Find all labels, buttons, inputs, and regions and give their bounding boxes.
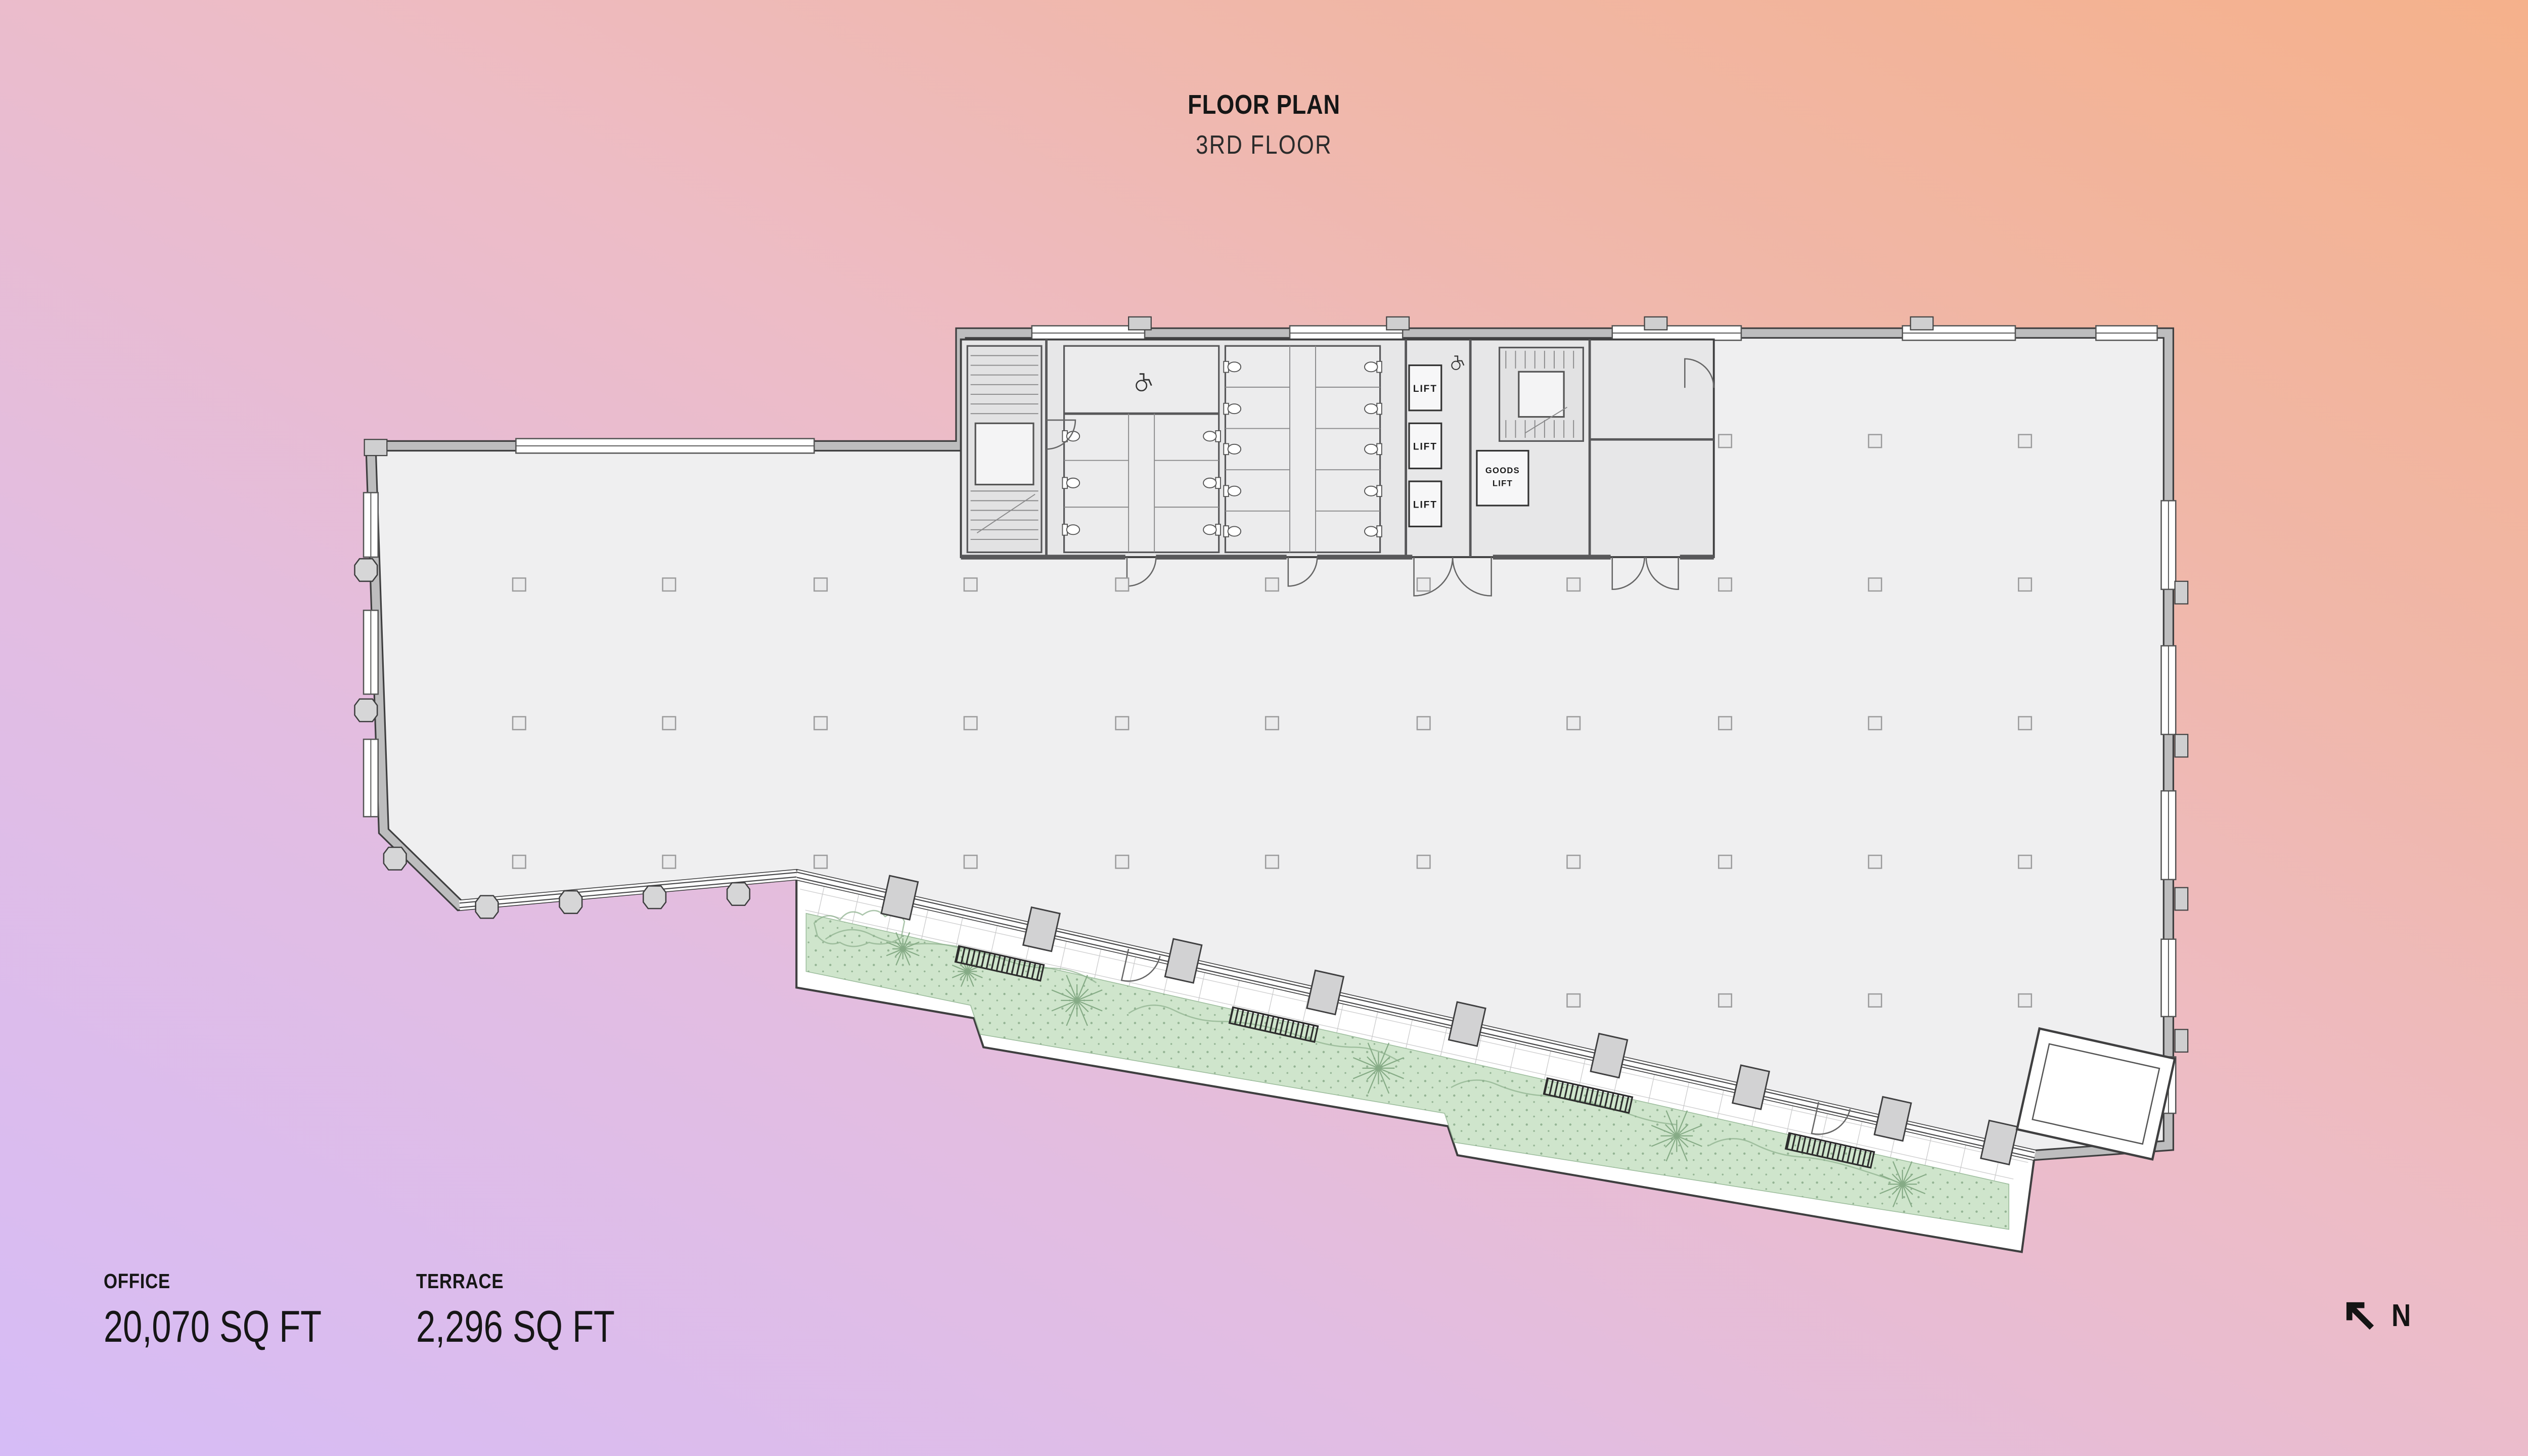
stat-office-value: 20,070 SQ FT bbox=[104, 1301, 322, 1352]
title-block: FLOOR PLAN 3RD FLOOR bbox=[0, 89, 2528, 160]
north-arrow-icon bbox=[2340, 1296, 2379, 1335]
stat-terrace-value: 2,296 SQ FT bbox=[416, 1301, 615, 1352]
column-marker bbox=[1719, 994, 1732, 1007]
wall-pier bbox=[1911, 317, 1933, 330]
toilet-icon bbox=[1365, 485, 1382, 496]
toilet-icon bbox=[1224, 403, 1241, 415]
wall-pier bbox=[1645, 317, 1667, 330]
column-marker bbox=[663, 717, 676, 730]
lift-label: LIFT bbox=[1413, 442, 1437, 452]
goods-lift-label-2: LIFT bbox=[1493, 479, 1513, 488]
toilet-icon bbox=[1224, 485, 1241, 496]
pilaster bbox=[476, 896, 499, 919]
toilet-icon bbox=[1365, 526, 1382, 537]
column-marker bbox=[964, 578, 977, 591]
column-marker bbox=[1266, 717, 1279, 730]
service-core: LIFT LIFT LIFT GOODS LIFT bbox=[961, 340, 1714, 596]
column-marker bbox=[663, 578, 676, 591]
column-marker bbox=[1719, 435, 1732, 448]
stairwell-east bbox=[1500, 347, 1584, 441]
page-subtitle: 3RD FLOOR bbox=[202, 130, 2326, 160]
stat-terrace-label: TERRACE bbox=[416, 1269, 633, 1293]
column-marker bbox=[964, 717, 977, 730]
column-marker bbox=[1719, 855, 1732, 869]
goods-lift-label-1: GOODS bbox=[1485, 466, 1520, 475]
north-label: N bbox=[2391, 1297, 2411, 1334]
toilet-icon bbox=[1203, 524, 1221, 535]
pilaster bbox=[643, 886, 666, 909]
toilet-icon bbox=[1224, 526, 1241, 537]
wall-pier bbox=[2175, 581, 2188, 604]
wall-pier bbox=[2175, 888, 2188, 911]
pilaster bbox=[355, 699, 378, 722]
stat-office-label: OFFICE bbox=[104, 1269, 341, 1293]
column-marker bbox=[1417, 717, 1430, 730]
wall-pier bbox=[365, 439, 387, 456]
column-marker bbox=[1116, 855, 1129, 869]
column-marker bbox=[2018, 435, 2032, 448]
column-marker bbox=[814, 717, 827, 730]
goods-lift: GOODS LIFT bbox=[1477, 451, 1528, 506]
toilet-icon bbox=[1224, 444, 1241, 455]
column-marker bbox=[1567, 578, 1580, 591]
column-marker bbox=[1719, 578, 1732, 591]
lift-label: LIFT bbox=[1413, 499, 1437, 510]
column-marker bbox=[1869, 855, 1882, 869]
column-marker bbox=[814, 855, 827, 869]
pilaster bbox=[384, 847, 407, 870]
toilet-icon bbox=[1203, 477, 1221, 488]
column-marker bbox=[1567, 717, 1580, 730]
column-marker bbox=[964, 855, 977, 869]
pilaster bbox=[560, 891, 582, 914]
column-marker bbox=[513, 578, 526, 591]
column-marker bbox=[513, 717, 526, 730]
column-marker bbox=[1869, 717, 1882, 730]
wc-block-east bbox=[1225, 346, 1380, 552]
wall-pier bbox=[2175, 1029, 2188, 1052]
wall-pier bbox=[2175, 735, 2188, 757]
toilet-icon bbox=[1365, 403, 1382, 415]
column-marker bbox=[1417, 578, 1430, 591]
wc-block-west bbox=[1064, 346, 1219, 552]
column-marker bbox=[1116, 717, 1129, 730]
toilet-icon bbox=[1365, 361, 1382, 373]
column-marker bbox=[513, 855, 526, 869]
column-marker bbox=[663, 855, 676, 869]
column-marker bbox=[1116, 578, 1129, 591]
column-marker bbox=[2018, 855, 2032, 869]
lift-bank: LIFT LIFT LIFT bbox=[1409, 366, 1441, 527]
compass: N bbox=[2340, 1296, 2415, 1335]
lift-label: LIFT bbox=[1413, 384, 1437, 394]
column-marker bbox=[2018, 994, 2032, 1007]
pilaster bbox=[727, 883, 750, 905]
column-marker bbox=[1567, 994, 1580, 1007]
column-marker bbox=[814, 578, 827, 591]
column-marker bbox=[1869, 994, 1882, 1007]
toilet-icon bbox=[1224, 361, 1241, 373]
page-title: FLOOR PLAN bbox=[202, 89, 2326, 120]
column-marker bbox=[1567, 855, 1580, 869]
column-marker bbox=[1266, 578, 1279, 591]
pilaster bbox=[355, 559, 378, 581]
stairwell-west bbox=[967, 346, 1042, 552]
toilet-icon bbox=[1203, 431, 1221, 442]
toilet-icon bbox=[1062, 524, 1079, 535]
column-marker bbox=[1719, 717, 1732, 730]
toilet-icon bbox=[1062, 477, 1079, 488]
stat-office: OFFICE 20,070 SQ FT bbox=[104, 1269, 383, 1352]
column-marker bbox=[2018, 578, 2032, 591]
column-marker bbox=[2018, 717, 2032, 730]
wall-pier bbox=[1128, 317, 1151, 330]
column-marker bbox=[1869, 435, 1882, 448]
column-marker bbox=[1266, 855, 1279, 869]
floor-plan: LIFT LIFT LIFT GOODS LIFT bbox=[0, 0, 2528, 1456]
toilet-icon bbox=[1365, 444, 1382, 455]
column-marker bbox=[1417, 855, 1430, 869]
stat-terrace: TERRACE 2,296 SQ FT bbox=[416, 1269, 671, 1352]
page-background: LIFT LIFT LIFT GOODS LIFT bbox=[0, 0, 2528, 1456]
wall-pier bbox=[1386, 317, 1409, 330]
column-marker bbox=[1869, 578, 1882, 591]
